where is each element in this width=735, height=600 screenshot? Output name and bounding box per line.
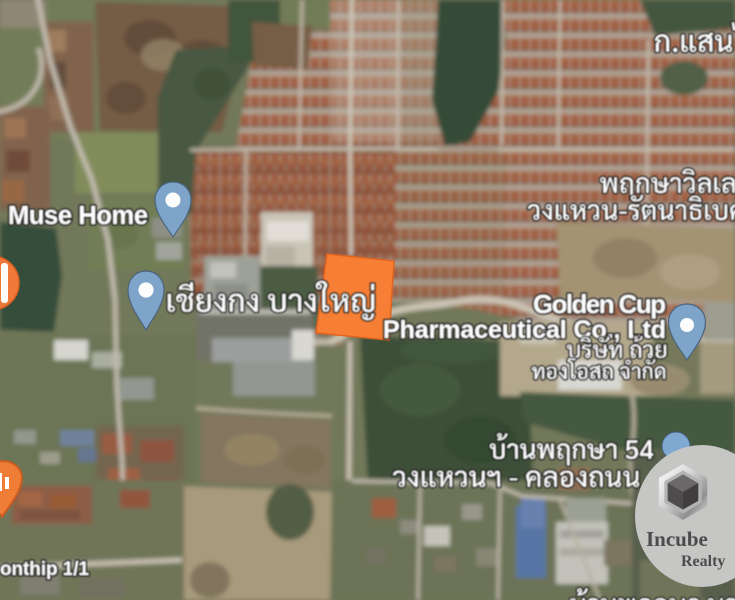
svg-text:Realty: Realty: [681, 553, 725, 570]
svg-text:Muse Home: Muse Home: [8, 202, 148, 230]
svg-text:Incube: Incube: [646, 527, 708, 551]
svg-text:onthip 1/1: onthip 1/1: [0, 559, 89, 580]
svg-text:Pharmaceutical Co., Ltd: Pharmaceutical Co., Ltd: [383, 316, 666, 344]
svg-text:Golden Cup: Golden Cup: [533, 289, 666, 319]
